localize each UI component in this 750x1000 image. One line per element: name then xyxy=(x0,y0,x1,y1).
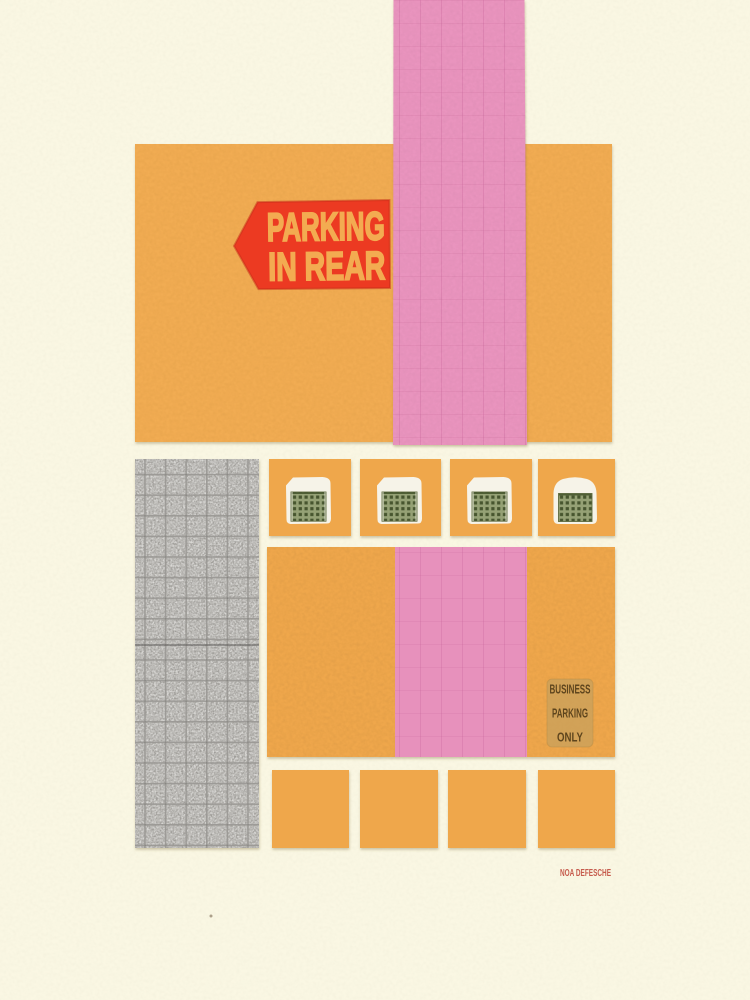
svg-text:PARKING: PARKING xyxy=(552,706,588,721)
svg-text:IN REAR: IN REAR xyxy=(268,244,386,289)
svg-text:NOA DEFESCHE: NOA DEFESCHE xyxy=(560,867,611,879)
svg-text:BUSINESS: BUSINESS xyxy=(550,682,591,697)
svg-text:PARKING: PARKING xyxy=(267,205,386,250)
svg-text:ONLY: ONLY xyxy=(557,730,583,745)
